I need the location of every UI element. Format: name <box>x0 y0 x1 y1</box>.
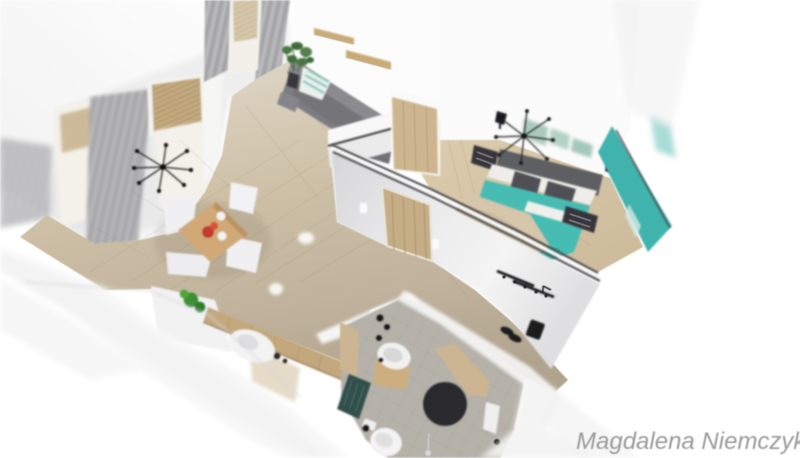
svg-text:Magdalena Niemczyk: Magdalena Niemczyk <box>576 428 800 455</box>
